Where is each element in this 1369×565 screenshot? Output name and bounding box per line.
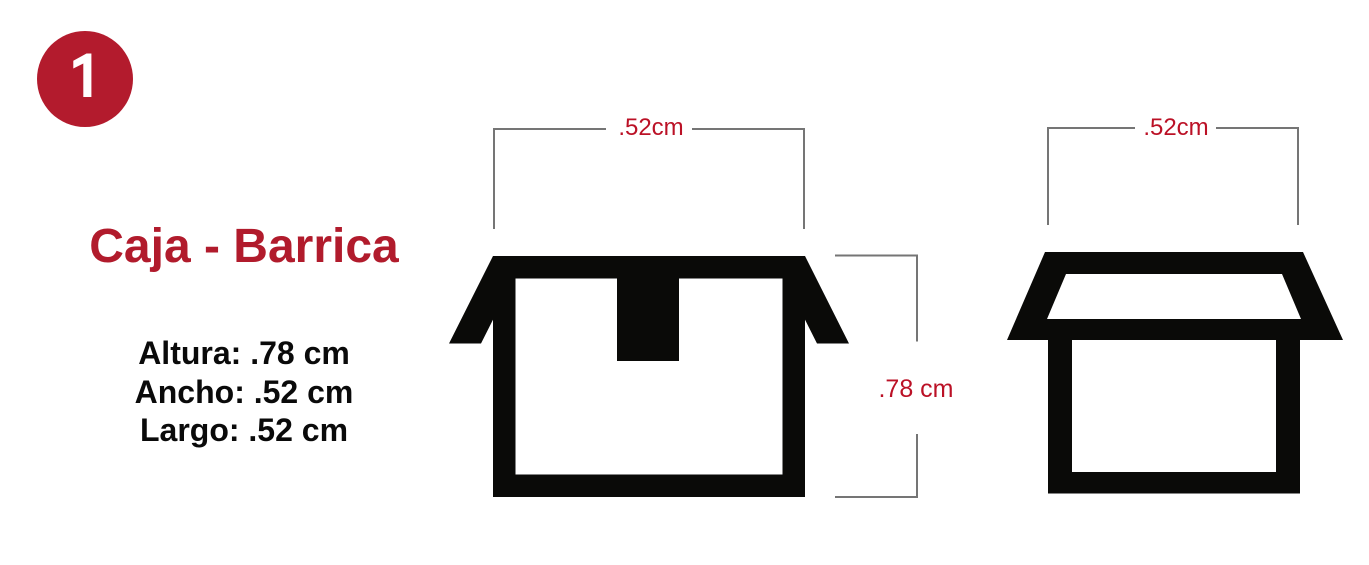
svg-text:.52cm: .52cm — [618, 114, 683, 141]
svg-text:.52cm: .52cm — [1143, 114, 1208, 141]
svg-text:.78 cm: .78 cm — [878, 375, 953, 403]
